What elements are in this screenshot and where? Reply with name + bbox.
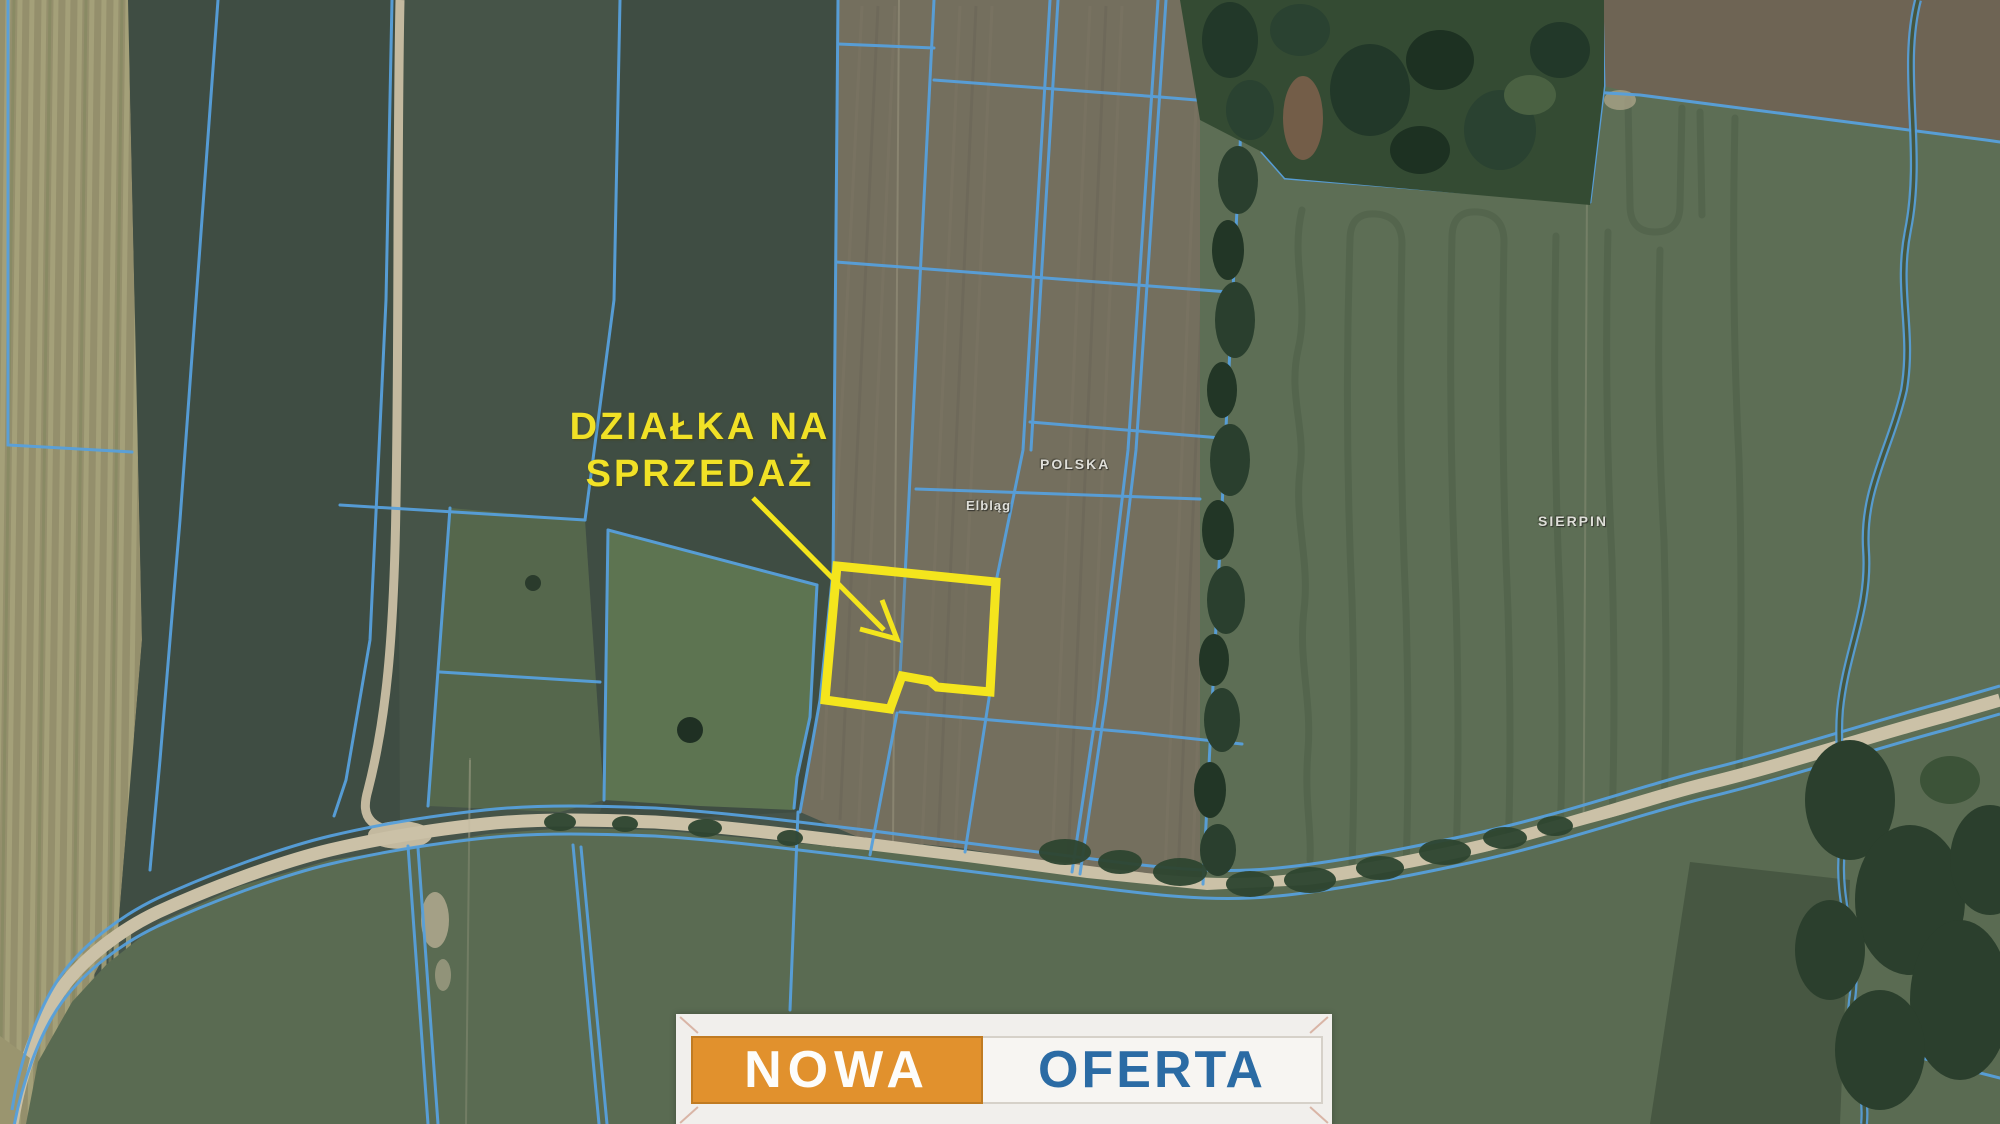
banner-bevel bbox=[1309, 1016, 1328, 1034]
place-label-polska: POLSKA bbox=[1040, 456, 1110, 472]
new-offer-banner: NOWA OFERTA bbox=[676, 1014, 1332, 1124]
banner-panels: NOWA OFERTA bbox=[691, 1036, 1323, 1104]
place-label-sierpin: SIERPIN bbox=[1538, 513, 1608, 529]
banner-bevel bbox=[679, 1106, 698, 1124]
for-sale-callout-line2: SPRZEDAŻ bbox=[478, 451, 922, 498]
banner-word-nowa: NOWA bbox=[691, 1036, 983, 1104]
banner-bevel bbox=[1309, 1106, 1328, 1124]
for-sale-callout-line1: DZIAŁKA NA bbox=[478, 404, 922, 451]
banner-bevel bbox=[679, 1016, 698, 1034]
green-parcel-west bbox=[428, 508, 604, 812]
listing-map-image: DZIAŁKA NA SPRZEDAŻ POLSKA Elbląg SIERPI… bbox=[0, 0, 2000, 1124]
banner-word-oferta: OFERTA bbox=[983, 1036, 1323, 1104]
for-sale-callout: DZIAŁKA NA SPRZEDAŻ bbox=[478, 404, 922, 498]
bush bbox=[677, 717, 703, 743]
place-label-elblag: Elbląg bbox=[966, 498, 1011, 513]
bush bbox=[525, 575, 541, 591]
aerial-map-canvas bbox=[0, 0, 2000, 1124]
